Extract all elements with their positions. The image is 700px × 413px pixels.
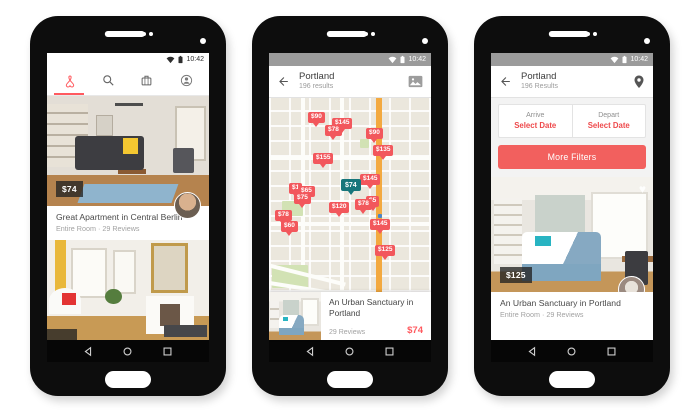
map-toolbar: Portland 196 results: [269, 66, 431, 98]
toolbar-titles: Portland 196 Results: [521, 72, 624, 91]
depart-value: Select Date: [588, 121, 630, 130]
speaker-slot: [105, 31, 145, 37]
airbnb-logo: [62, 73, 78, 89]
map-card-body: An Urban Sanctuary in Portland 29 Review…: [321, 292, 431, 340]
profile-icon-button[interactable]: [171, 66, 201, 95]
photo-detail: [270, 301, 279, 329]
front-camera: [200, 38, 206, 44]
recents-icon[interactable]: [162, 346, 173, 357]
sensor-dots: [586, 32, 597, 36]
map-card-title: An Urban Sanctuary in Portland: [329, 297, 423, 318]
depart-label: Depart: [598, 112, 619, 119]
android-navbar: [269, 340, 431, 362]
search-icon-button[interactable]: [93, 66, 123, 95]
android-navbar: [47, 340, 209, 362]
photo-detail: [105, 289, 121, 304]
status-bar: 10:42: [491, 53, 653, 66]
hardware-home-button: [549, 371, 595, 388]
host-avatar[interactable]: [174, 192, 201, 219]
photo-detail: [535, 236, 551, 246]
wifi-icon: [166, 56, 175, 64]
photo-detail: [522, 264, 601, 280]
listing-photo[interactable]: ♥ $125: [491, 177, 653, 292]
photo-detail: [71, 248, 107, 298]
heart-icon[interactable]: ♥: [639, 182, 646, 196]
home-icon[interactable]: [122, 346, 133, 357]
map-price-pin[interactable]: $155: [313, 153, 333, 164]
toolbar-titles: Portland 196 results: [299, 72, 399, 91]
map-card-reviews: 29 Reviews: [329, 329, 365, 336]
map-road: [269, 156, 431, 160]
photo-detail: [62, 293, 77, 305]
photo-view-icon[interactable]: [408, 75, 423, 88]
price-tag-partial: [47, 329, 77, 340]
map-price-pin[interactable]: $145: [360, 174, 380, 185]
map-price-pin[interactable]: $90: [308, 112, 325, 123]
hardware-home-button: [327, 371, 373, 388]
map-card-row: 29 Reviews $74: [329, 325, 423, 336]
listing-card-berlin[interactable]: $74 Great Apartment in Central Berlin En…: [47, 96, 209, 240]
date-filters: Arrive Select Date Depart Select Date: [498, 104, 646, 138]
sensor-dots: [142, 32, 153, 36]
map-price-pin[interactable]: $120: [329, 202, 349, 213]
photo-detail: [160, 304, 179, 326]
android-navbar: [491, 340, 653, 362]
back-arrow-icon[interactable]: [499, 75, 512, 88]
wifi-icon: [388, 56, 397, 64]
listing-subtitle: Entire Room · 29 Reviews: [500, 310, 644, 319]
map-price-pin[interactable]: $60: [281, 221, 298, 232]
map-price-pin[interactable]: $78: [355, 199, 372, 210]
toolbar-title: Portland: [521, 72, 624, 83]
toolbar-subtitle: 196 results: [299, 83, 399, 91]
status-bar: 10:42: [269, 53, 431, 66]
back-arrow-icon[interactable]: [277, 75, 290, 88]
map-price-pin[interactable]: $145: [370, 219, 390, 230]
photo-detail: [164, 325, 208, 337]
photo-detail: [123, 138, 138, 155]
phone-middle: 10:42 Portland 196 results: [252, 16, 448, 396]
search-icon: [101, 73, 116, 88]
listing-card-portland[interactable]: ♥ $125 An Urban Sanctuary in Portland En…: [491, 177, 653, 340]
trips-luggage-icon: [139, 73, 154, 88]
status-time: 10:42: [630, 56, 648, 63]
listing-photo[interactable]: $74: [47, 96, 209, 206]
photo-detail: [151, 243, 188, 293]
screen-right: 10:42 Portland 196 Results Arrive Select…: [491, 53, 653, 362]
photo-detail: [96, 115, 114, 136]
battery-icon: [622, 55, 627, 64]
recents-icon[interactable]: [384, 346, 395, 357]
battery-icon: [400, 55, 405, 64]
listing-thumbnail: [269, 292, 321, 340]
profile-icon: [179, 73, 194, 88]
status-time: 10:42: [186, 56, 204, 63]
trips-icon-button[interactable]: [131, 66, 161, 95]
listing-meta: An Urban Sanctuary in Portland Entire Ro…: [491, 292, 653, 340]
map-price-pin[interactable]: $74: [341, 179, 361, 191]
three-phone-mockup: 10:42: [0, 0, 700, 413]
map-transit-marker: [378, 214, 382, 218]
arrive-date-button[interactable]: Arrive Select Date: [499, 105, 572, 137]
map-price-pin[interactable]: $78: [275, 210, 292, 221]
recents-icon[interactable]: [606, 346, 617, 357]
map-price-pin[interactable]: $125: [375, 245, 395, 256]
status-time: 10:42: [408, 56, 426, 63]
battery-icon: [178, 55, 183, 64]
screen-left: 10:42: [47, 53, 209, 362]
front-camera: [644, 38, 650, 44]
home-toolbar: [47, 66, 209, 96]
front-camera: [422, 38, 428, 44]
wifi-icon: [610, 56, 619, 64]
home-icon[interactable]: [566, 346, 577, 357]
arrive-value: Select Date: [514, 121, 556, 130]
toolbar-title: Portland: [299, 72, 399, 83]
more-filters-button[interactable]: More Filters: [498, 145, 646, 169]
phone-right: 10:42 Portland 196 Results Arrive Select…: [474, 16, 670, 396]
listing-photo-next[interactable]: [47, 240, 209, 340]
photo-detail: [113, 250, 136, 294]
photo-detail: [283, 317, 288, 321]
status-bar: 10:42: [47, 53, 209, 66]
map-card-price: $74: [407, 325, 423, 336]
listing-title: An Urban Sanctuary in Portland: [500, 298, 644, 308]
back-icon[interactable]: [527, 346, 538, 357]
speaker-slot: [327, 31, 367, 37]
map-price-pin[interactable]: $75: [294, 193, 311, 204]
sensor-dots: [364, 32, 375, 36]
active-tab-underline: [54, 93, 84, 95]
map-park: [360, 139, 370, 149]
photo-detail: [78, 184, 179, 203]
map-view[interactable]: $90$145$78$90$135$155$145$1$65$75$74$5$7…: [269, 98, 431, 292]
results-toolbar: Portland 196 Results: [491, 66, 653, 98]
listing-subtitle: Entire Room · 29 Reviews: [56, 224, 200, 233]
back-icon[interactable]: [305, 346, 316, 357]
map-price-pin[interactable]: $90: [366, 128, 383, 139]
hardware-home-button: [105, 371, 151, 388]
toolbar-subtitle: 196 Results: [521, 83, 624, 91]
home-icon[interactable]: [344, 346, 355, 357]
map-price-pin[interactable]: $135: [373, 145, 393, 156]
arrive-label: Arrive: [526, 112, 544, 119]
price-tag: $125: [500, 267, 532, 283]
map-price-pin[interactable]: $78: [325, 125, 342, 136]
filters-section: Arrive Select Date Depart Select Date Mo…: [491, 98, 653, 177]
photo-detail: [494, 198, 522, 265]
price-tag: $74: [56, 181, 83, 197]
back-icon[interactable]: [83, 346, 94, 357]
photo-detail: [115, 103, 143, 106]
phone-left: 10:42: [30, 16, 226, 396]
listing-map-card[interactable]: An Urban Sanctuary in Portland 29 Review…: [269, 292, 431, 340]
photo-detail: [279, 328, 304, 335]
speaker-slot: [549, 31, 589, 37]
photo-detail: [173, 148, 194, 173]
tab-listings-active[interactable]: [55, 66, 85, 95]
depart-date-button[interactable]: Depart Select Date: [572, 105, 646, 137]
map-pin-icon[interactable]: [633, 75, 645, 89]
screen-middle: 10:42 Portland 196 results: [269, 53, 431, 362]
